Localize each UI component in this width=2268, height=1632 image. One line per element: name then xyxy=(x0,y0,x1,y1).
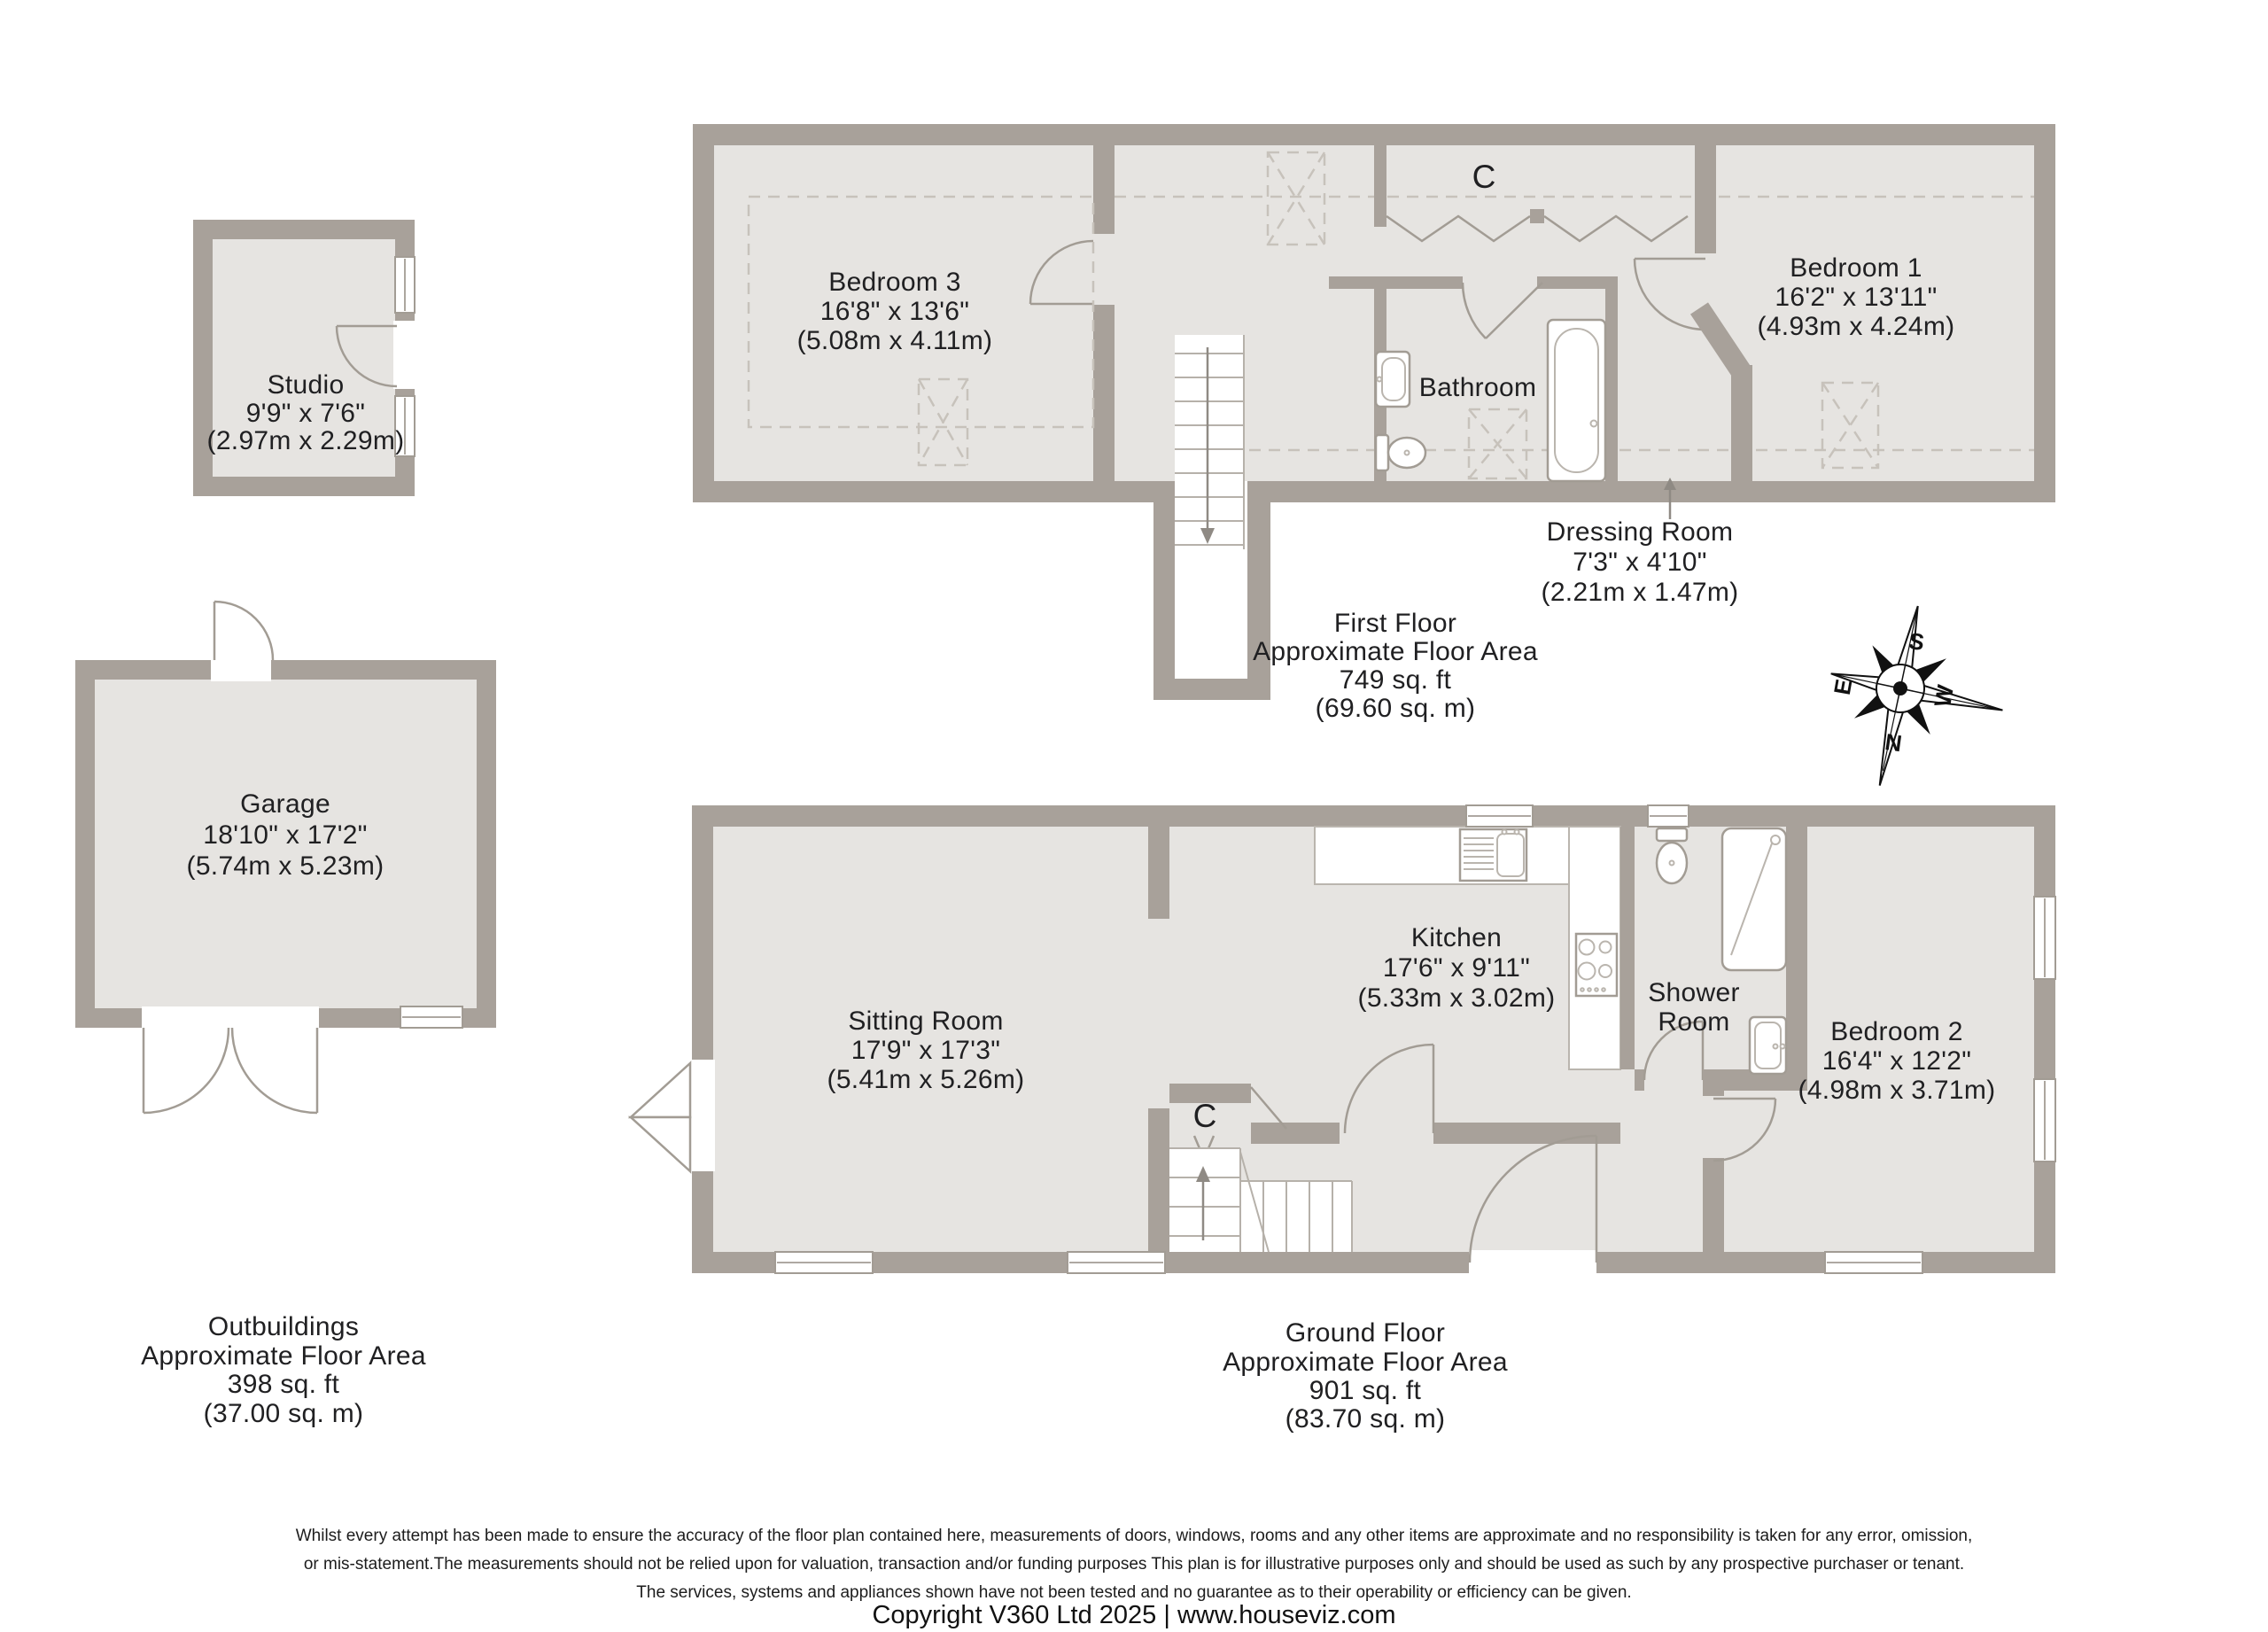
shower-sink-icon xyxy=(1750,1017,1786,1074)
bedroom3-dim-metric: (5.08m x 4.11m) xyxy=(797,326,993,355)
outbuildings-subtitle: Approximate Floor Area xyxy=(141,1341,426,1371)
bath-icon xyxy=(1548,320,1605,481)
bedroom2-dim-imperial: 16'4" x 12'2" xyxy=(1822,1046,1971,1076)
closet-label-ground-floor: C xyxy=(1193,1098,1217,1134)
kitchen-label: Kitchen xyxy=(1411,923,1502,952)
kitchen-dim-metric: (5.33m x 3.02m) xyxy=(1358,983,1556,1013)
ground-floor-area-imperial: 901 sq. ft xyxy=(1309,1376,1422,1405)
bedroom1-dim-imperial: 16'2" x 13'11" xyxy=(1775,283,1937,312)
first-floor-area-imperial: 749 sq. ft xyxy=(1340,665,1452,695)
sitting-room-window-right xyxy=(1068,1252,1165,1273)
bathroom-label: Bathroom xyxy=(1419,373,1536,402)
floorplan-canvas: Studio 9'9" x 7'6" (2.97m x 2.29m) Garag… xyxy=(0,0,2268,1632)
first-floor-area-summary: First Floor Approximate Floor Area 749 s… xyxy=(1253,609,1538,723)
garage-side-door xyxy=(211,602,273,681)
first-floor-subtitle: Approximate Floor Area xyxy=(1253,637,1538,666)
first-floor-area-metric: (69.60 sq. m) xyxy=(1316,694,1476,723)
dressing-room-dim-imperial: 7'3" x 4'10" xyxy=(1573,548,1706,577)
sitting-room-dim-metric: (5.41m x 5.26m) xyxy=(827,1065,1025,1094)
kitchen-window xyxy=(1466,805,1533,827)
bedroom2-label: Bedroom 2 xyxy=(1830,1017,1962,1046)
shower-room-window xyxy=(1648,805,1689,827)
closet-label-first-floor: C xyxy=(1472,159,1496,195)
bedroom3-dim-imperial: 16'8" x 13'6" xyxy=(820,297,969,326)
garage-room: Garage 18'10" x 17'2" (5.74m x 5.23m) xyxy=(75,602,496,1113)
ground-floor-subtitle: Approximate Floor Area xyxy=(1223,1348,1508,1377)
shower-room-label-line2: Room xyxy=(1658,1007,1729,1037)
dressing-room-label: Dressing Room xyxy=(1547,517,1734,547)
bedroom2-window-lower xyxy=(2034,1079,2055,1162)
compass-west: W xyxy=(1929,682,1959,709)
compass-rose-icon: S W N E xyxy=(1806,590,2020,807)
ground-floor-plan: C xyxy=(631,805,2055,1275)
compass-north: N xyxy=(1884,728,1904,757)
sitting-room-dim-imperial: 17'9" x 17'3" xyxy=(851,1036,1000,1065)
outbuildings-area-metric: (37.00 sq. m) xyxy=(204,1399,364,1428)
bedroom1-label: Bedroom 1 xyxy=(1790,253,1922,283)
hob-icon xyxy=(1576,934,1617,996)
disclaimer-line1: Whilst every attempt has been made to en… xyxy=(296,1527,1973,1545)
studio-label: Studio xyxy=(268,370,345,400)
kitchen-sink-icon xyxy=(1460,829,1526,881)
disclaimer-line3: The services, systems and appliances sho… xyxy=(636,1583,1631,1602)
outbuildings-area-imperial: 398 sq. ft xyxy=(228,1370,340,1399)
copyright-line: Copyright V360 Ltd 2025 | www.houseviz.c… xyxy=(872,1601,1395,1629)
sitting-room-window-left xyxy=(775,1252,873,1273)
outbuildings-title: Outbuildings xyxy=(208,1312,359,1341)
french-doors xyxy=(631,1060,715,1171)
bedroom2-window-bottom xyxy=(1825,1252,1922,1273)
kitchen-dim-imperial: 17'6" x 9'11" xyxy=(1383,953,1530,983)
disclaimer-line2: or mis-statement.The measurements should… xyxy=(304,1555,1964,1574)
shower-icon xyxy=(1722,828,1786,970)
ground-floor-title: Ground Floor xyxy=(1285,1318,1445,1348)
garage-label: Garage xyxy=(240,789,330,819)
garage-double-doors xyxy=(142,1006,319,1113)
studio-window-top xyxy=(395,257,415,313)
ground-floor-area-summary: Ground Floor Approximate Floor Area 901 … xyxy=(1223,1318,1508,1434)
garage-dim-imperial: 18'10" x 17'2" xyxy=(203,820,367,850)
first-floor-title: First Floor xyxy=(1334,609,1456,638)
bedroom1-dim-metric: (4.93m x 4.24m) xyxy=(1758,312,1955,341)
studio-dim-imperial: 9'9" x 7'6" xyxy=(246,399,365,428)
sitting-room-label: Sitting Room xyxy=(848,1006,1003,1036)
shower-room-label-line1: Shower xyxy=(1648,978,1740,1007)
footer: Whilst every attempt has been made to en… xyxy=(296,1527,1973,1629)
bedroom2-window-upper xyxy=(2034,897,2055,979)
floorplan-page: Studio 9'9" x 7'6" (2.97m x 2.29m) Garag… xyxy=(0,0,2268,1632)
garage-window xyxy=(400,1006,462,1028)
toilet2-icon xyxy=(1657,828,1687,883)
bedroom3-label: Bedroom 3 xyxy=(828,268,960,297)
studio-room: Studio 9'9" x 7'6" (2.97m x 2.29m) xyxy=(193,220,416,496)
sink-icon xyxy=(1376,352,1410,407)
compass-south: S xyxy=(1907,627,1926,656)
bedroom2-dim-metric: (4.98m x 3.71m) xyxy=(1798,1076,1996,1105)
ground-floor-area-metric: (83.70 sq. m) xyxy=(1285,1404,1446,1434)
toilet-icon xyxy=(1376,435,1425,470)
studio-dim-metric: (2.97m x 2.29m) xyxy=(207,426,405,455)
garage-dim-metric: (5.74m x 5.23m) xyxy=(187,851,384,881)
dressing-room-dim-metric: (2.21m x 1.47m) xyxy=(1542,578,1739,607)
outbuildings-area-summary: Outbuildings Approximate Floor Area 398 … xyxy=(141,1312,426,1428)
